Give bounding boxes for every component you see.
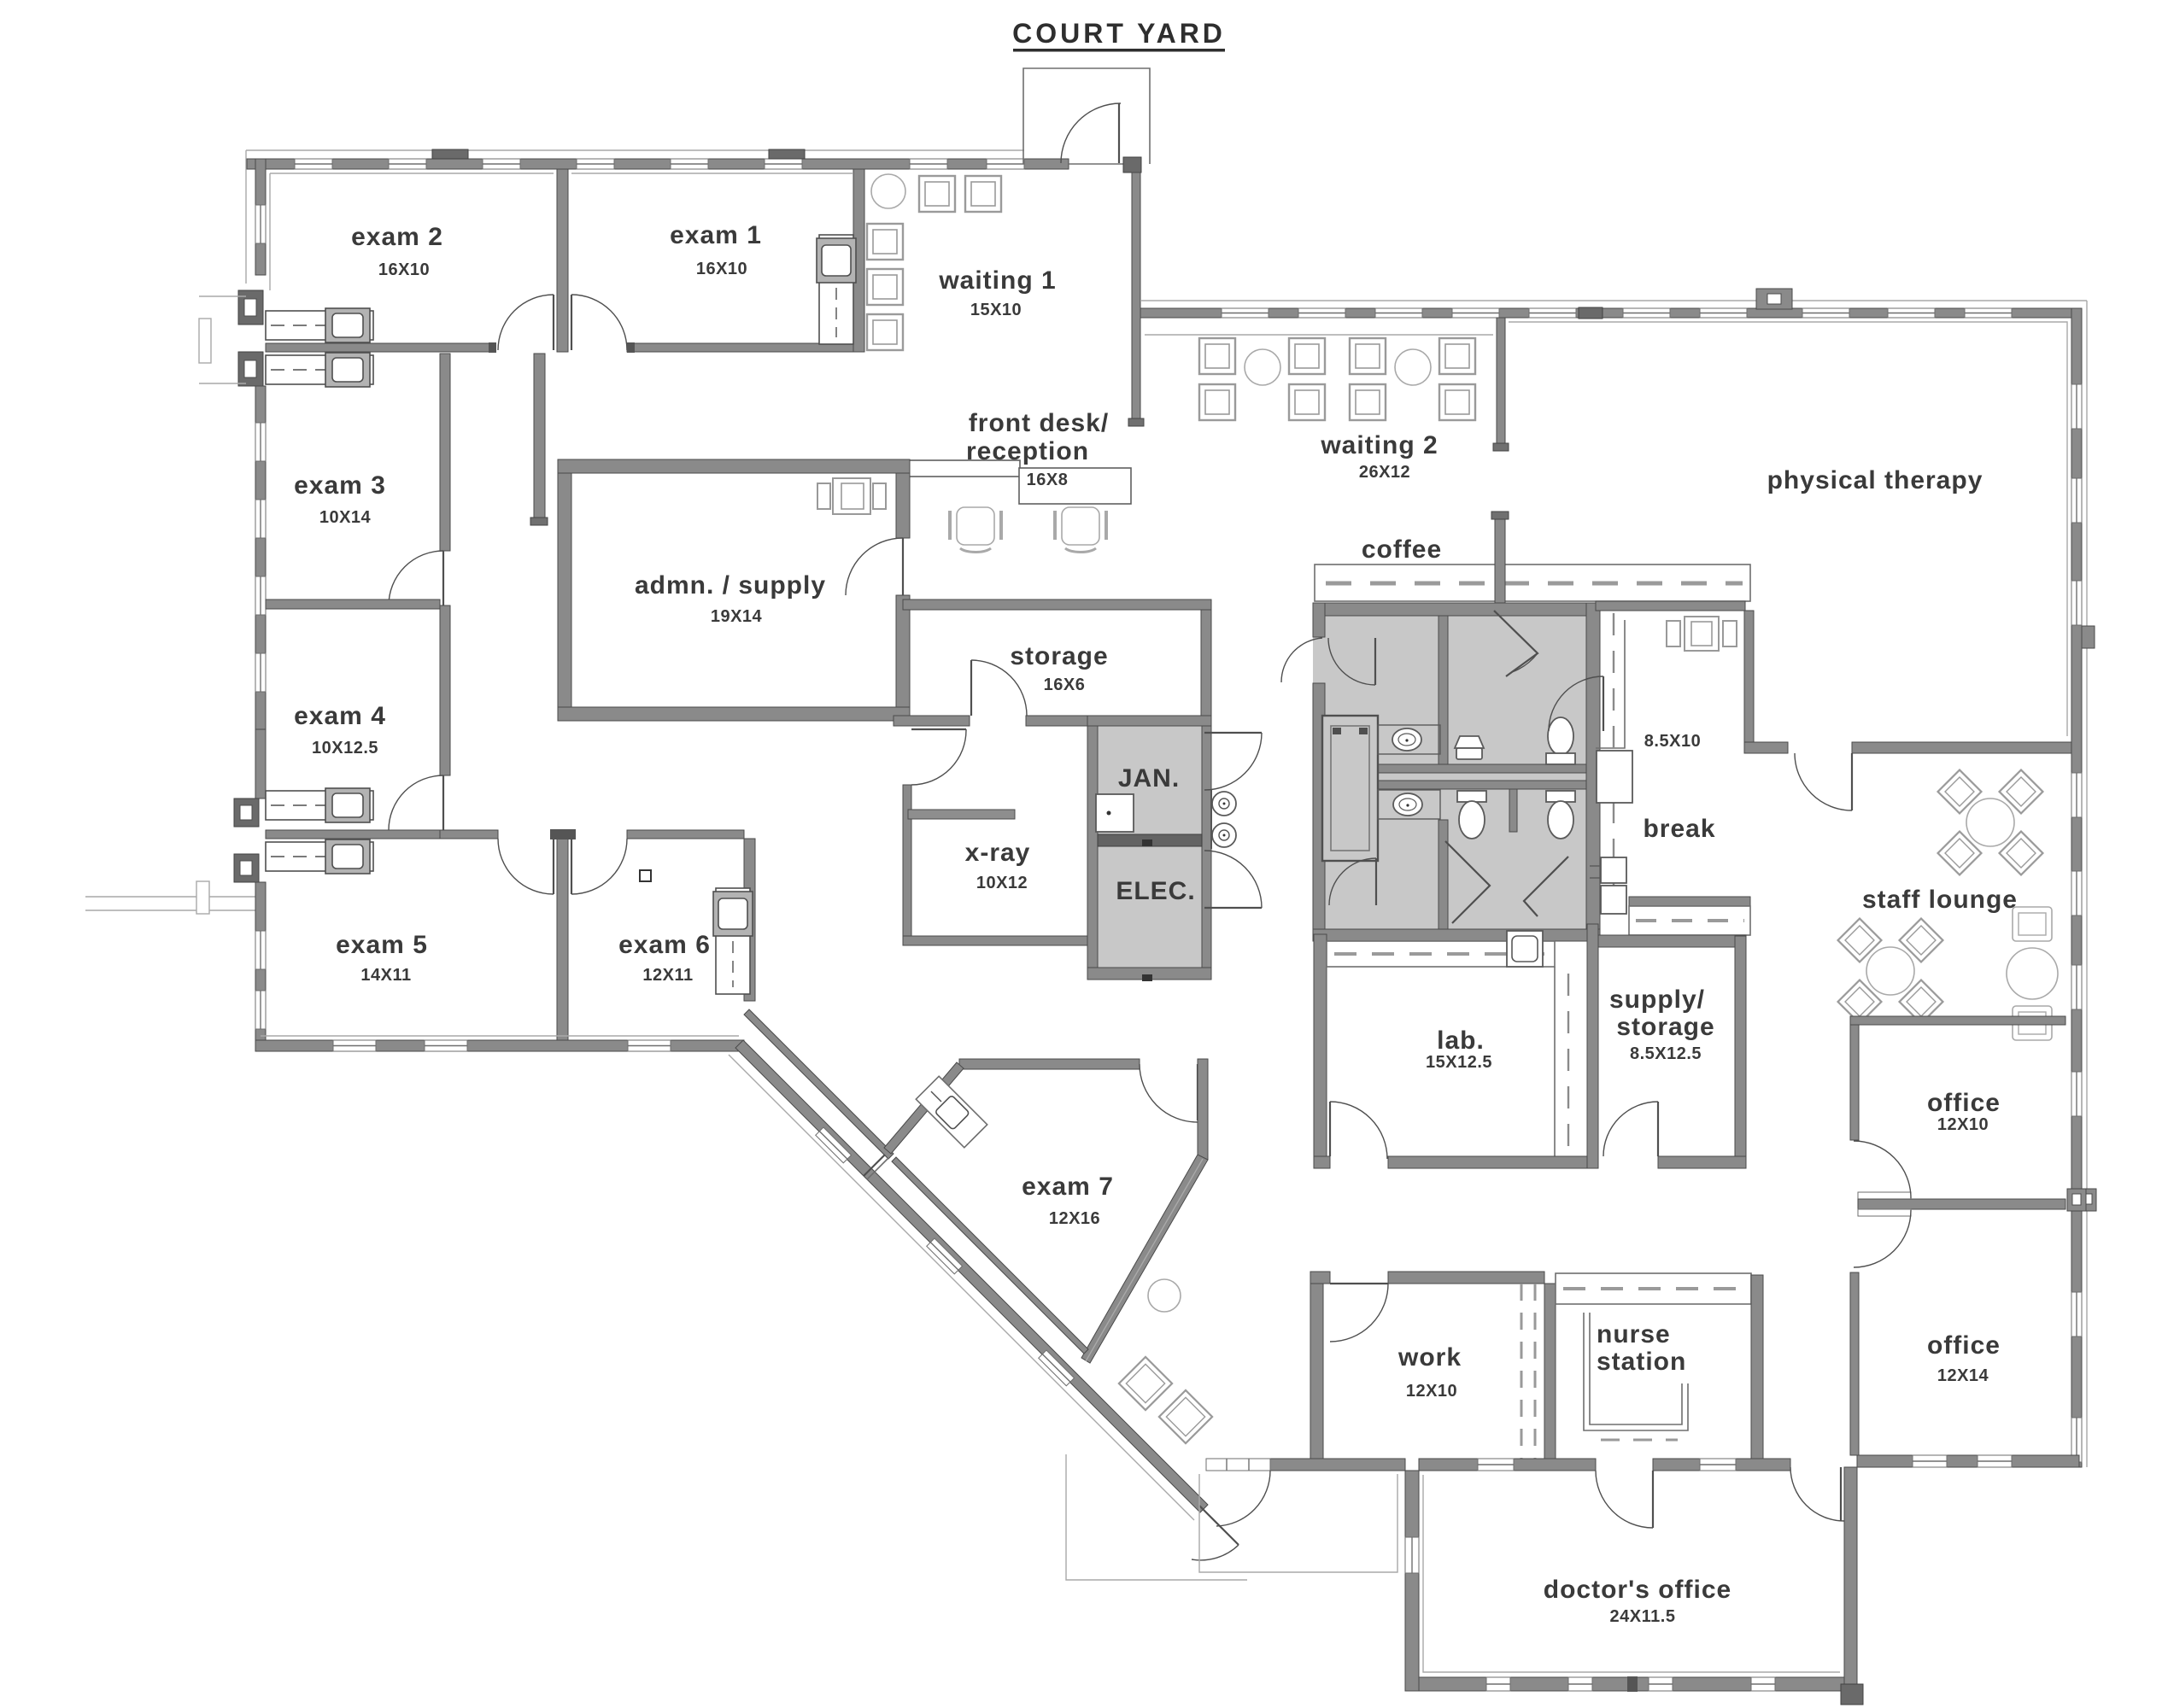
svg-text:exam 4: exam 4	[294, 702, 386, 730]
svg-text:supply/: supply/	[1609, 986, 1705, 1014]
svg-text:office: office	[1927, 1331, 2001, 1360]
svg-text:10X12: 10X12	[976, 874, 1028, 892]
svg-text:coffee: coffee	[1362, 535, 1442, 564]
svg-text:office: office	[1927, 1089, 2001, 1117]
svg-text:8.5X12.5: 8.5X12.5	[1630, 1044, 1702, 1063]
svg-text:admn. / supply: admn. / supply	[635, 571, 826, 600]
svg-text:16X6: 16X6	[1044, 676, 1086, 694]
svg-text:26X12: 26X12	[1359, 463, 1410, 482]
svg-text:ELEC.: ELEC.	[1116, 877, 1195, 905]
svg-text:JAN.: JAN.	[1118, 764, 1180, 793]
svg-text:10X14: 10X14	[319, 508, 372, 527]
svg-text:waiting 2: waiting 2	[1320, 431, 1438, 459]
svg-text:exam 2: exam 2	[351, 223, 443, 251]
svg-text:8.5X10: 8.5X10	[1644, 732, 1701, 751]
svg-text:16X8: 16X8	[1027, 471, 1069, 489]
svg-text:15X12.5: 15X12.5	[1426, 1053, 1492, 1072]
svg-text:staff lounge: staff lounge	[1862, 886, 2018, 914]
svg-text:19X14: 19X14	[711, 607, 763, 626]
svg-text:16X10: 16X10	[378, 260, 430, 279]
svg-text:24X11.5: 24X11.5	[1610, 1607, 1676, 1626]
svg-text:12X10: 12X10	[1406, 1382, 1457, 1401]
svg-text:work: work	[1397, 1343, 1462, 1372]
svg-text:exam 7: exam 7	[1022, 1173, 1114, 1201]
svg-text:lab.: lab.	[1437, 1027, 1485, 1055]
svg-text:waiting 1: waiting 1	[938, 266, 1056, 295]
svg-text:12X10: 12X10	[1937, 1115, 1989, 1134]
svg-text:front desk/: front desk/	[969, 409, 1109, 437]
svg-text:physical therapy: physical therapy	[1767, 466, 1983, 494]
svg-text:exam 3: exam 3	[294, 471, 386, 500]
svg-text:exam 1: exam 1	[670, 221, 762, 249]
svg-text:12X16: 12X16	[1049, 1209, 1100, 1228]
svg-text:doctor's office: doctor's office	[1544, 1576, 1732, 1604]
svg-text:12X11: 12X11	[642, 966, 693, 985]
svg-text:storage: storage	[1616, 1013, 1714, 1041]
svg-text:exam 6: exam 6	[618, 931, 711, 959]
svg-text:15X10: 15X10	[970, 301, 1022, 319]
svg-text:10X12.5: 10X12.5	[312, 739, 378, 757]
svg-text:station: station	[1597, 1348, 1686, 1376]
svg-text:exam 5: exam 5	[336, 931, 428, 959]
svg-text:16X10: 16X10	[696, 260, 747, 278]
svg-text:x-ray: x-ray	[965, 839, 1031, 867]
svg-text:nurse: nurse	[1597, 1320, 1671, 1348]
svg-text:12X14: 12X14	[1937, 1366, 1989, 1385]
svg-text:COURT YARD: COURT YARD	[1012, 18, 1226, 49]
svg-text:14X11: 14X11	[360, 966, 411, 985]
svg-text:break: break	[1643, 815, 1715, 843]
svg-text:storage: storage	[1010, 642, 1108, 670]
